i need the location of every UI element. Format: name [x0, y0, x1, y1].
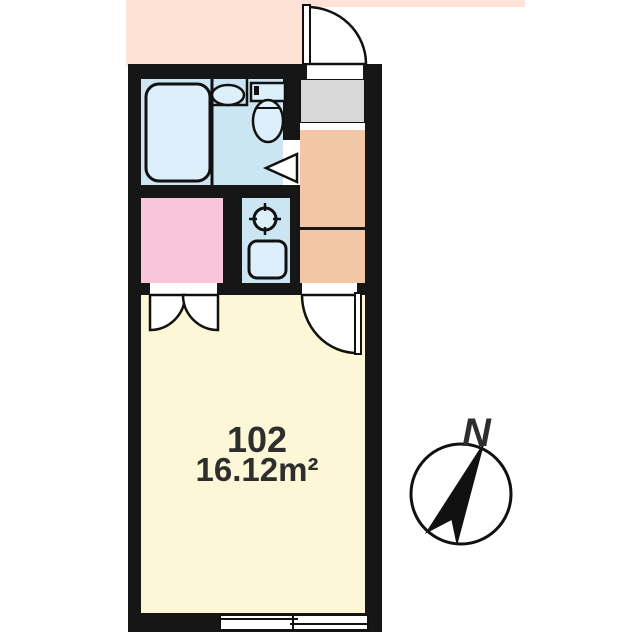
entrance-door-gap [307, 64, 363, 79]
wall-kitchen-right [290, 185, 300, 283]
exterior-peach-strip [305, 0, 525, 7]
entrance-door-swing [307, 7, 366, 64]
toilet-flush-button [254, 86, 259, 95]
wall-bathroom-bottom [141, 185, 300, 198]
wall-closet-kitchen [223, 198, 242, 283]
washbasin-icon [212, 85, 244, 105]
hallway-step-line [300, 227, 365, 230]
hallway-lower-floor [300, 230, 365, 283]
room-door-gap [302, 283, 357, 295]
genkan-threshold [300, 123, 365, 130]
kitchen-sink-icon [249, 241, 286, 278]
exterior-peach-band [126, 0, 307, 66]
hallway-upper-floor [300, 130, 365, 227]
room-door-leaf [355, 293, 361, 354]
compass-north-label: N [462, 411, 492, 455]
toilet-bowl-icon [253, 100, 283, 142]
genkan-floor [300, 79, 365, 123]
floorplan-canvas: N 102 16.12m² [0, 0, 640, 640]
closet-floor [141, 198, 223, 283]
wall-right [365, 64, 382, 632]
entrance-door-leaf [303, 5, 310, 64]
closet-door-gap [150, 283, 217, 295]
stove-burner-icon [254, 208, 276, 230]
bathtub-icon [146, 84, 210, 181]
wall-left [128, 64, 141, 632]
floorplan-svg: N 102 16.12m² [0, 0, 640, 640]
room-area: 16.12m² [196, 451, 319, 488]
